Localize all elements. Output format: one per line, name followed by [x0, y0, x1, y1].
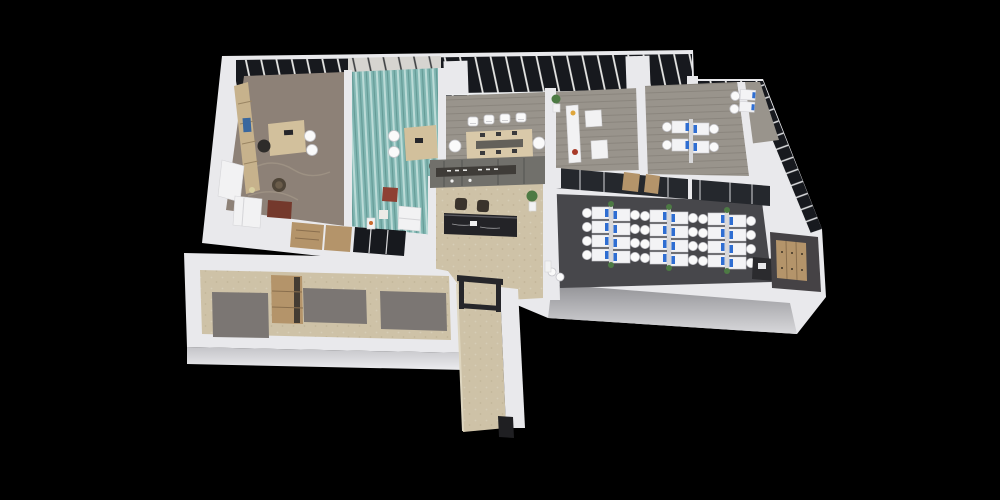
spare-chair	[556, 273, 564, 281]
guest-chair	[389, 131, 400, 142]
side-table	[379, 210, 388, 219]
red-armchair	[382, 187, 398, 202]
counter-sign	[470, 221, 477, 226]
plant	[552, 95, 561, 104]
closet-doors	[324, 225, 352, 252]
lounge-chair	[533, 137, 545, 149]
guest-chair-dark	[455, 198, 468, 211]
guest-chair	[389, 147, 400, 158]
low-table	[591, 140, 608, 159]
entry-corridor	[457, 275, 525, 438]
meeting-chair	[500, 114, 510, 123]
meeting-chair	[484, 115, 494, 124]
executive-chair	[258, 140, 271, 153]
sofa	[233, 196, 262, 228]
wood-door	[644, 174, 660, 194]
guest-chair-dark	[477, 200, 490, 213]
guest-chair	[307, 145, 318, 156]
desk-monitor	[415, 138, 423, 143]
floor-plan-render	[0, 0, 1000, 500]
wall-art	[243, 118, 252, 133]
wall-post	[556, 168, 561, 188]
chair	[730, 104, 740, 114]
water-cooler	[545, 261, 551, 272]
interior-wall	[428, 176, 436, 272]
guest-chair	[305, 131, 316, 142]
plant	[527, 191, 538, 202]
meeting-chair	[516, 113, 526, 122]
wing-tile-right	[380, 291, 447, 331]
wall-post	[688, 179, 692, 199]
hvac-box	[625, 56, 650, 90]
armchair	[585, 110, 602, 127]
yellow-lamp	[571, 111, 576, 116]
low-cabinet	[218, 160, 244, 202]
planter	[529, 202, 536, 211]
executive-desk	[268, 120, 306, 156]
planter	[553, 104, 560, 112]
floor-lamp	[249, 187, 255, 193]
corridor-threshold	[498, 416, 514, 438]
hvac-box	[443, 61, 468, 95]
service-wing	[184, 253, 466, 370]
pantry	[770, 232, 821, 292]
dark-panel	[353, 227, 406, 256]
coffee-table	[267, 200, 292, 219]
lounge-chair	[449, 140, 461, 152]
closet-doors	[290, 222, 324, 250]
render-stage	[0, 0, 1000, 500]
wing-cabinet-slot	[294, 277, 300, 323]
wing-tile-middle	[303, 288, 367, 324]
interior-wall	[344, 70, 352, 228]
chair	[730, 91, 740, 101]
desk-monitor	[284, 130, 293, 135]
pantry-cabinet	[776, 240, 807, 281]
wood-door	[622, 172, 640, 192]
wing-tile-left	[212, 292, 269, 338]
red-lamp	[572, 149, 578, 155]
meeting-chair	[468, 117, 478, 126]
